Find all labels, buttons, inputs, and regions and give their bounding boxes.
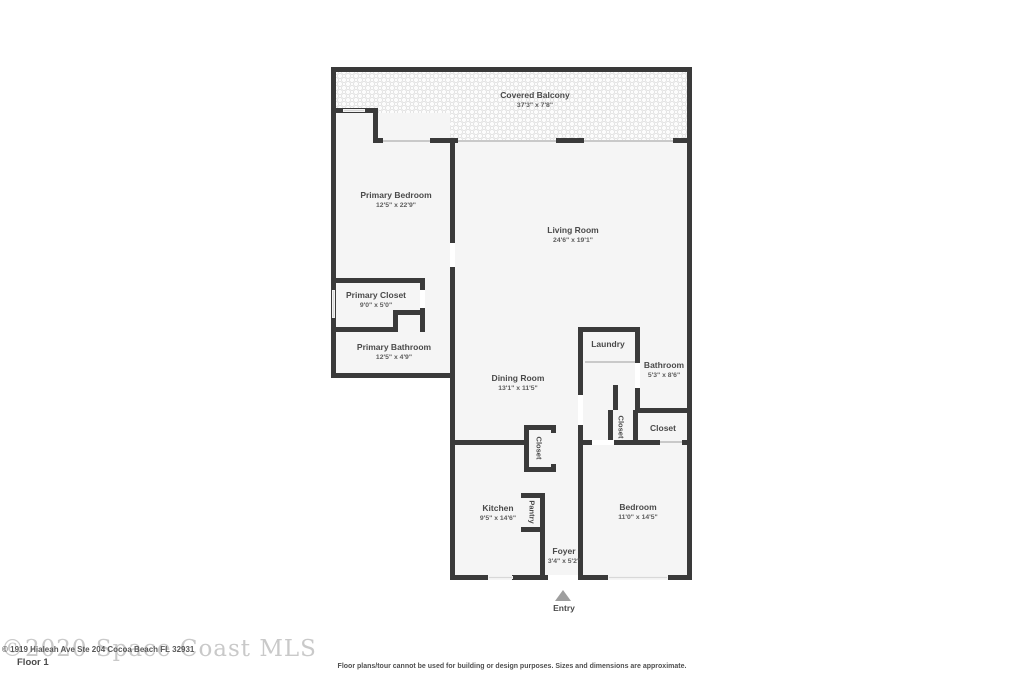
address-text: © 1919 Hialeah Ave Ste 204 Cocoa Beach F… (2, 645, 194, 654)
room-label-bathroom: Bathroom 5'3" x 8'6" (644, 361, 684, 380)
window (488, 576, 513, 579)
wall-segment (540, 532, 545, 580)
wall-segment (420, 315, 425, 332)
door-opening (578, 395, 583, 425)
room-dims: 13'1" x 11'5" (492, 385, 545, 393)
room-label-bedroom: Bedroom 11'0" x 14'5" (618, 503, 658, 522)
wall-segment (331, 327, 398, 332)
wall-segment (524, 425, 529, 472)
wall-segment (331, 67, 692, 72)
window (332, 290, 335, 318)
wall-segment (578, 327, 640, 332)
divider-line (660, 441, 682, 443)
room-label-laundry: Laundry (591, 340, 625, 350)
entry-label: Entry (553, 603, 575, 613)
room-label-bedroom-closet: Closet (650, 424, 676, 434)
room-name: Covered Balcony (500, 91, 569, 101)
room-name: Primary Bathroom (357, 343, 431, 353)
room-dims: 24'6" x 19'1" (547, 237, 598, 245)
wall-segment (668, 575, 692, 580)
wall-segment (420, 283, 425, 290)
room-label-primary-bathroom: Primary Bathroom 12'5" x 4'9" (357, 343, 431, 362)
wall-segment (578, 425, 583, 443)
primary-suite-area (336, 113, 450, 378)
door-opening (450, 243, 455, 267)
room-dims: 5'3" x 8'6" (644, 372, 684, 380)
wall-segment (378, 138, 383, 143)
room-label-pantry: Pantry (528, 500, 537, 523)
room-name: Closet (650, 424, 676, 434)
door-opening (548, 575, 578, 580)
wall-segment (450, 138, 455, 243)
window (608, 576, 668, 579)
room-name: Living Room (547, 226, 598, 236)
room-dims: 11'0" x 14'5" (618, 514, 658, 522)
room-label-primary-bedroom: Primary Bedroom 12'5" x 22'9" (360, 191, 431, 210)
wall-segment (556, 138, 584, 143)
wall-segment (450, 267, 455, 283)
wall-segment (551, 464, 556, 472)
wall-segment (633, 410, 638, 445)
wall-segment (578, 327, 583, 395)
room-name: Primary Closet (346, 291, 406, 301)
wall-segment (635, 327, 640, 363)
room-name: Bedroom (618, 503, 658, 513)
wall-segment (331, 373, 455, 378)
room-dims: 3'4" x 5'2" (548, 558, 580, 566)
room-label-foyer: Foyer 3'4" x 5'2" (548, 547, 580, 566)
room-name: Kitchen (480, 504, 516, 514)
door-opening (420, 290, 425, 308)
divider-line (585, 361, 635, 363)
wall-segment (673, 138, 687, 143)
wall-segment (638, 408, 692, 413)
wall-segment (613, 385, 618, 410)
room-label-hall-closet: Closet (617, 416, 626, 439)
door-opening (635, 363, 640, 388)
room-name: Dining Room (492, 374, 545, 384)
entry-arrow-icon (555, 590, 571, 601)
room-label-dining-closet: Closet (535, 437, 544, 460)
floor-label: Floor 1 (17, 657, 49, 668)
wall-segment (551, 425, 556, 433)
divider-line (378, 140, 687, 142)
room-label-living-room: Living Room 24'6" x 19'1" (547, 226, 598, 245)
room-name: Bathroom (644, 361, 684, 371)
room-name: Foyer (548, 547, 580, 557)
room-label-dining-room: Dining Room 13'1" x 11'5" (492, 374, 545, 393)
wall-segment (450, 283, 455, 378)
room-label-covered-balcony: Covered Balcony 37'3" x 7'8" (500, 91, 569, 110)
floor-plan-canvas: Covered Balcony 37'3" x 7'8" Primary Bed… (0, 0, 1024, 683)
room-dims: 12'5" x 4'9" (357, 354, 431, 362)
window (343, 109, 365, 112)
door-opening (592, 440, 614, 445)
room-name: Laundry (591, 340, 625, 350)
room-dims: 12'5" x 22'9" (360, 202, 431, 210)
room-label-primary-closet: Primary Closet 9'0" x 5'0" (346, 291, 406, 310)
wall-segment (450, 378, 455, 580)
wall-segment (331, 278, 425, 283)
disclaimer-text: Floor plans/tour cannot be used for buil… (0, 663, 1024, 670)
wall-segment (450, 575, 488, 580)
room-dims: 9'5" x 14'6" (480, 515, 516, 523)
room-name: Primary Bedroom (360, 191, 431, 201)
wall-segment (682, 440, 692, 445)
wall-segment (687, 67, 692, 580)
room-dims: 9'0" x 5'0" (346, 302, 406, 310)
room-dims: 37'3" x 7'8" (500, 102, 569, 110)
room-label-kitchen: Kitchen 9'5" x 14'6" (480, 504, 516, 523)
wall-segment (455, 440, 524, 445)
